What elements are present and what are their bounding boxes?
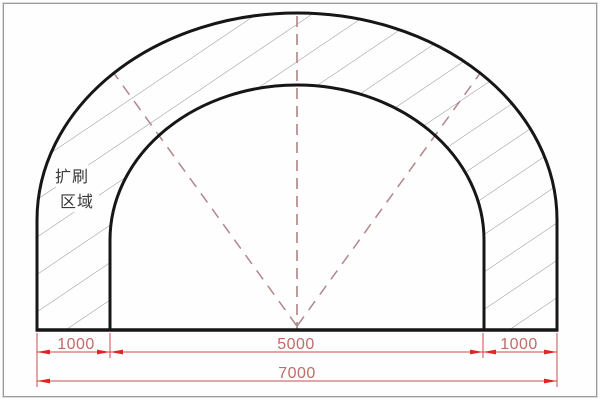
region-label-line2: 区域 [60,193,94,211]
region-label-line1: 扩刷 [55,168,89,186]
drawing-canvas: 1000 5000 1000 7000 扩刷 区域 [0,0,600,400]
sight-line-right [298,72,482,326]
arrow-right-offset-start [483,350,496,355]
arrow-inner-span-start [110,350,123,355]
dimension-label-left-offset: 1000 [57,336,95,353]
arrow-total-end [544,379,557,384]
sight-line-left [113,72,297,326]
tunnel-cross-section-drawing: 1000 5000 1000 7000 扩刷 区域 [0,0,600,400]
arrow-right-offset-end [544,350,557,355]
arrow-total-start [37,379,50,384]
dimension-label-right-offset: 1000 [500,336,538,353]
dimension-label-inner-span: 5000 [277,336,315,353]
arrow-left-offset-start [37,350,50,355]
arrow-inner-span-end [470,350,483,355]
dimension-label-total-span: 7000 [278,365,316,382]
arrow-left-offset-end [97,350,110,355]
